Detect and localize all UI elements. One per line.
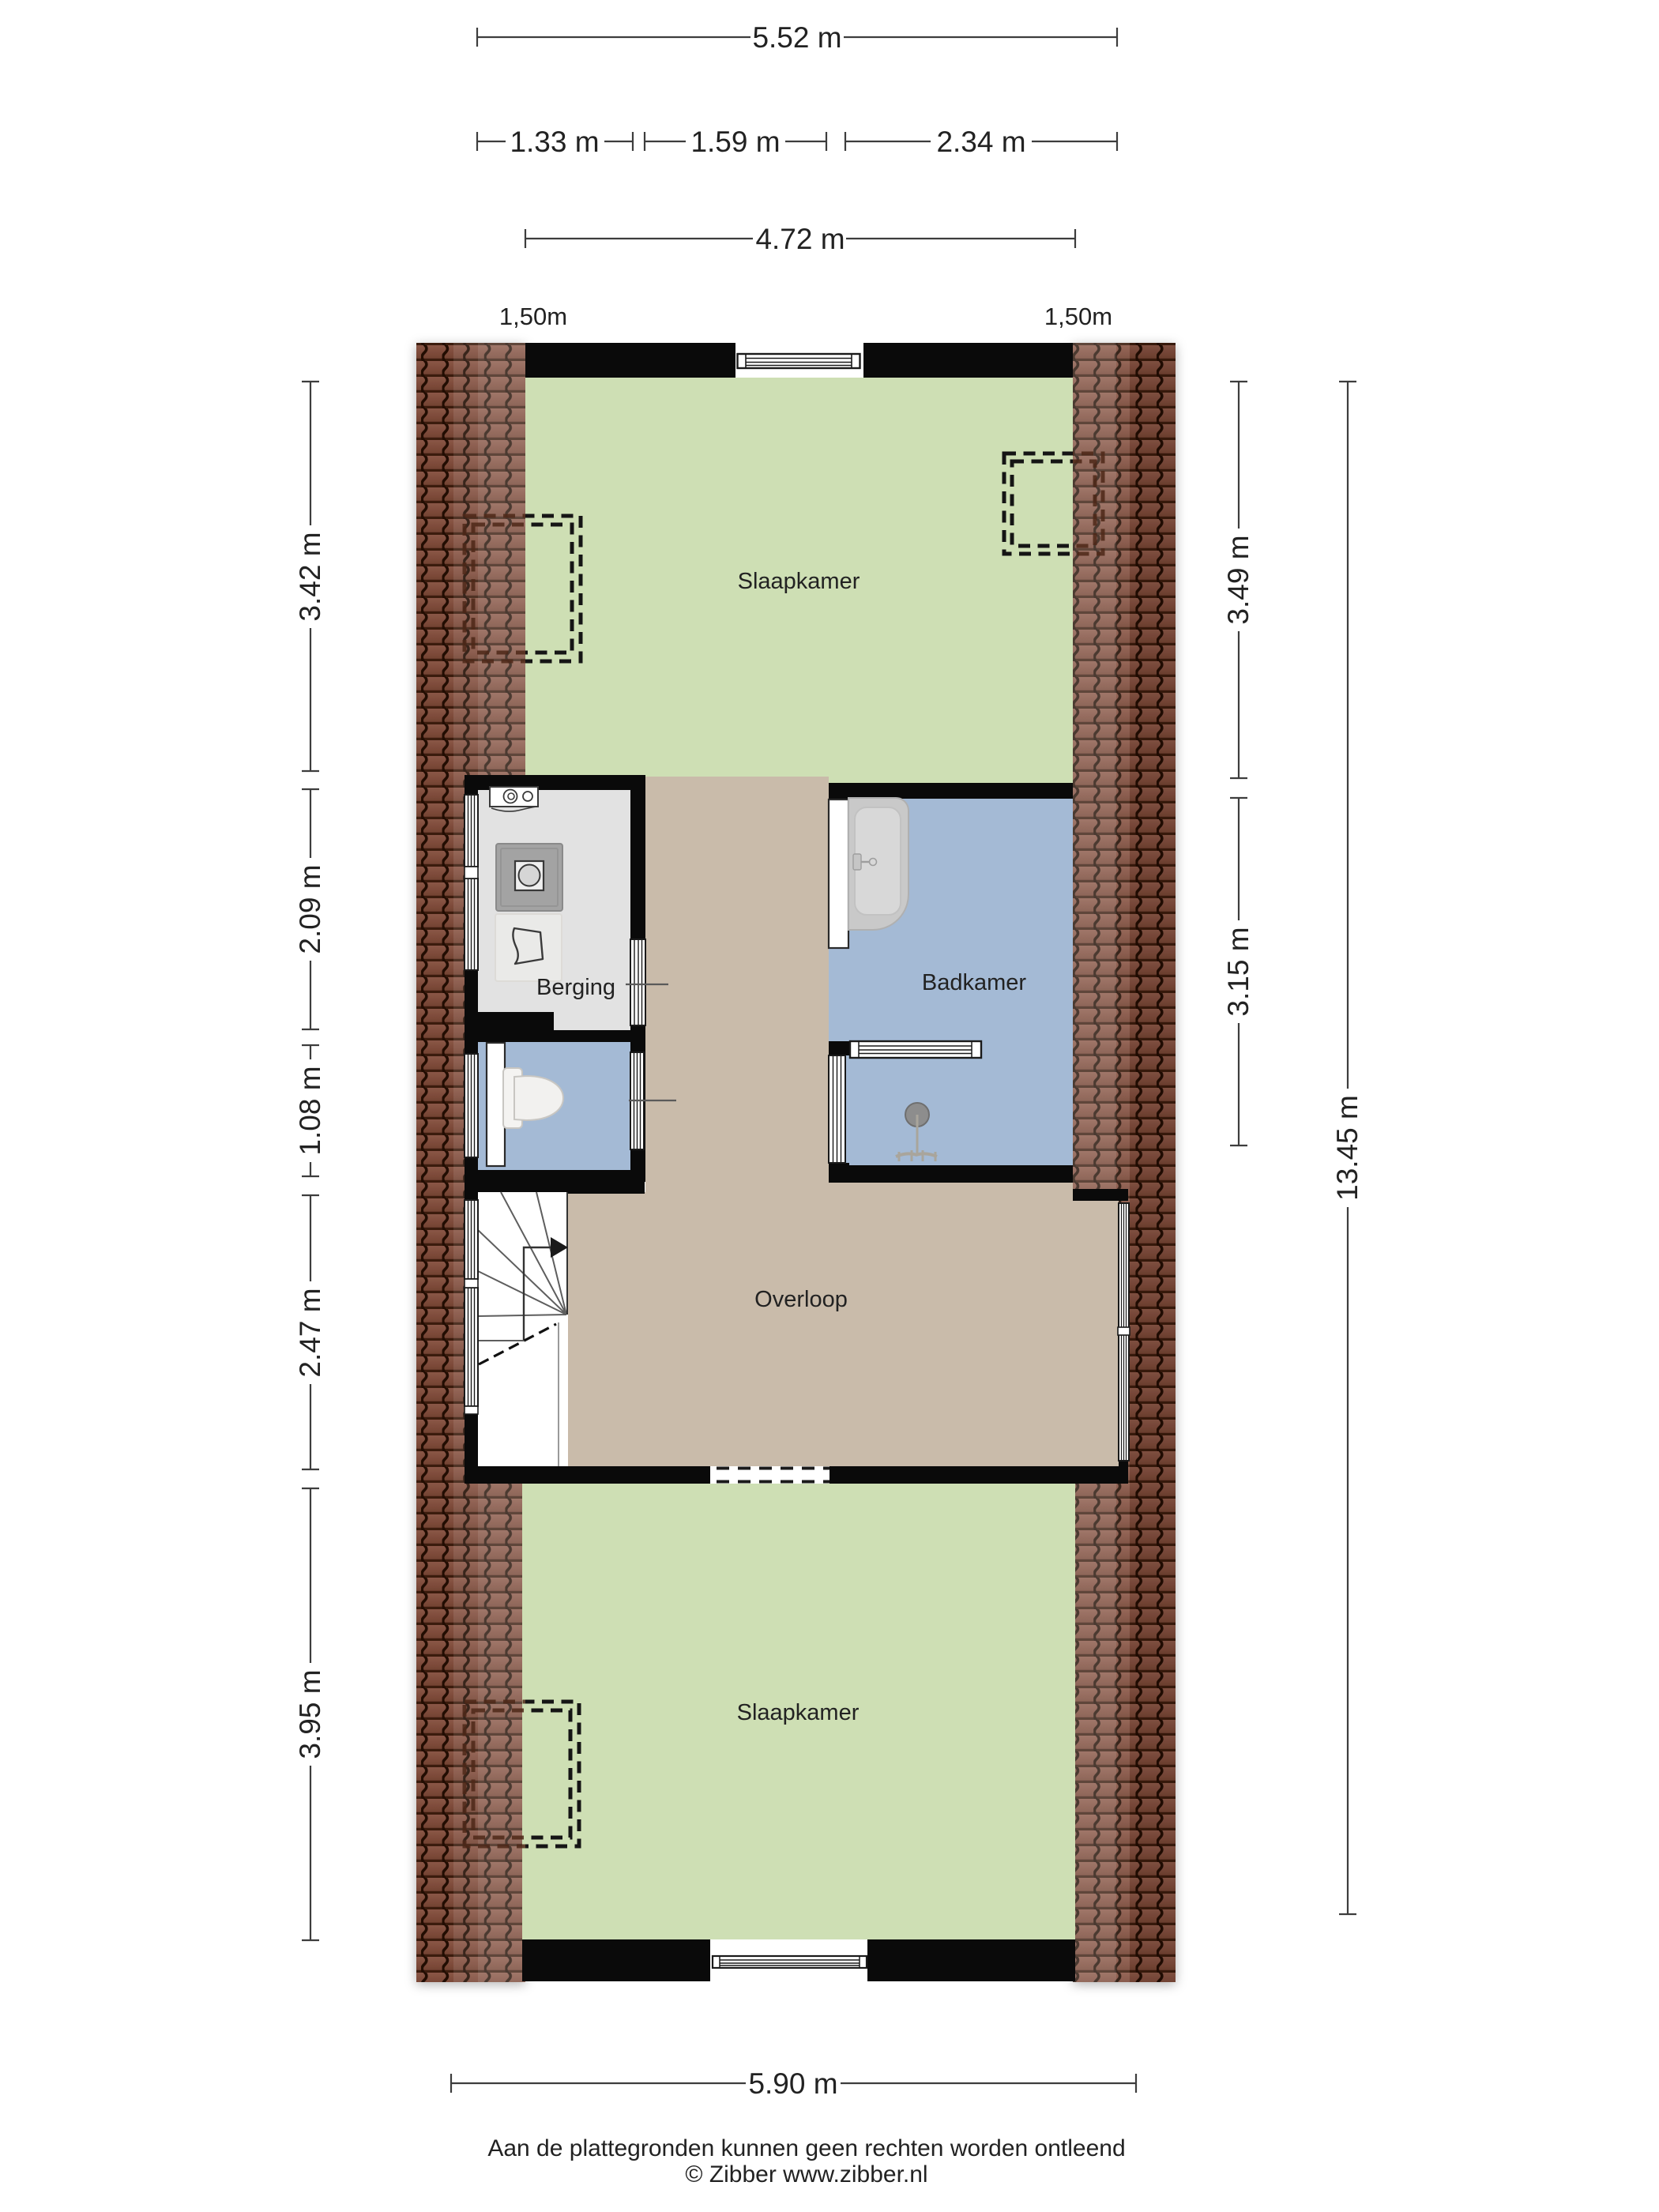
svg-text:1.33 m: 1.33 m xyxy=(510,126,599,158)
svg-text:5.52 m: 5.52 m xyxy=(752,21,841,54)
svg-text:3.42 m: 3.42 m xyxy=(294,532,326,621)
svg-text:3.15 m: 3.15 m xyxy=(1222,927,1255,1016)
svg-text:4.72 m: 4.72 m xyxy=(755,223,845,255)
svg-text:© Zibber www.zibber.nl: © Zibber www.zibber.nl xyxy=(685,2161,927,2188)
svg-text:Aan de plattegronden kunnen ge: Aan de plattegronden kunnen geen rechten… xyxy=(487,2135,1125,2161)
svg-text:1,50m: 1,50m xyxy=(1044,303,1112,330)
svg-text:2.47 m: 2.47 m xyxy=(294,1288,326,1377)
svg-text:5.90 m: 5.90 m xyxy=(748,2067,837,2100)
svg-text:Overloop: Overloop xyxy=(754,1287,848,1312)
svg-text:1.08 m: 1.08 m xyxy=(294,1066,326,1155)
svg-text:13.45 m: 13.45 m xyxy=(1331,1095,1364,1201)
svg-text:Berging: Berging xyxy=(536,975,615,1000)
svg-text:Slaapkamer: Slaapkamer xyxy=(737,1700,860,1725)
svg-text:3.95 m: 3.95 m xyxy=(294,1669,326,1759)
svg-text:1.59 m: 1.59 m xyxy=(690,126,780,158)
svg-text:Slaapkamer: Slaapkamer xyxy=(738,569,860,594)
svg-text:1,50m: 1,50m xyxy=(499,303,567,330)
svg-text:Badkamer: Badkamer xyxy=(922,970,1027,995)
svg-text:2.34 m: 2.34 m xyxy=(936,126,1025,158)
svg-text:3.49 m: 3.49 m xyxy=(1222,535,1255,624)
svg-text:2.09 m: 2.09 m xyxy=(294,864,326,954)
